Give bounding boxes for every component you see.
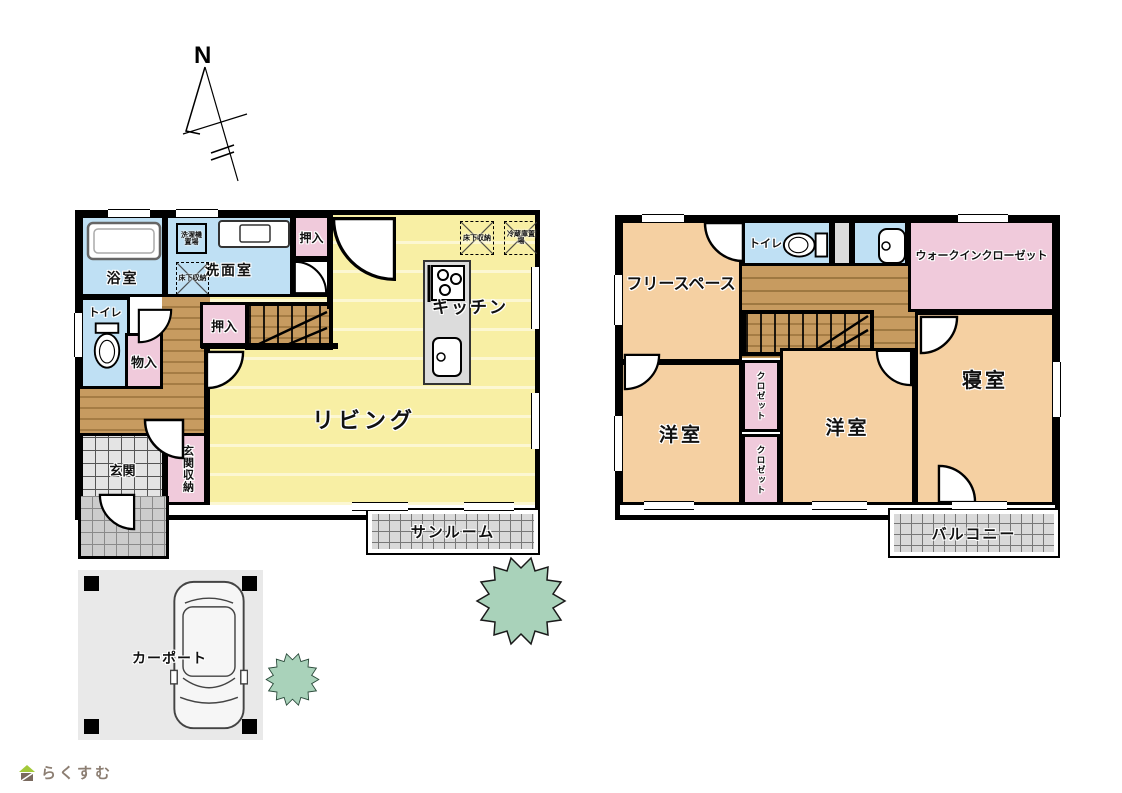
room-label-bath: 浴室 bbox=[107, 268, 139, 288]
room-toilet-2f: トイレ bbox=[742, 220, 832, 266]
floor1-plan: リビング キッチン 浴室 洗面室 洗濯機置場 床下収納 bbox=[75, 210, 540, 520]
window bbox=[952, 501, 1007, 510]
washbasin-icon bbox=[877, 227, 907, 265]
tree-icon bbox=[265, 652, 320, 707]
underfloor-storage-label: 床下収納 bbox=[463, 235, 491, 242]
carport-post bbox=[84, 719, 99, 734]
room-label-closet-1: クロゼット bbox=[755, 371, 768, 421]
window bbox=[642, 214, 684, 223]
room-label-closet-2: クロゼット bbox=[755, 445, 768, 495]
washing-machine-area: 洗濯機置場 bbox=[176, 223, 207, 254]
window bbox=[74, 313, 83, 357]
toilet-icon bbox=[91, 322, 123, 370]
logo-house-icon bbox=[18, 764, 36, 782]
partition bbox=[832, 220, 852, 266]
window bbox=[531, 393, 540, 449]
stairs-direction-lines bbox=[746, 314, 870, 352]
door-arc bbox=[332, 217, 396, 281]
door-arc bbox=[704, 222, 744, 262]
site-logo: らくすむ bbox=[18, 762, 113, 783]
window bbox=[176, 209, 218, 218]
room-label-wic: ウォークインクローゼット bbox=[916, 247, 1048, 263]
door-arc bbox=[206, 351, 244, 389]
carport: カーポート bbox=[78, 570, 263, 740]
bathtub-icon bbox=[86, 221, 162, 261]
kitchen-counter-icon bbox=[423, 260, 471, 385]
door-arc bbox=[920, 316, 958, 354]
room-label-sunroom: サンルーム bbox=[411, 521, 496, 542]
room-label-toilet-2f: トイレ bbox=[749, 235, 782, 251]
room-label-living: リビング bbox=[312, 403, 416, 435]
room-label-yoshitsu-1: 洋室 bbox=[659, 420, 703, 447]
room-toilet-1f: トイレ bbox=[80, 297, 130, 389]
window bbox=[958, 214, 1008, 223]
room-label-toilet-1f: トイレ bbox=[89, 304, 122, 320]
window bbox=[108, 209, 150, 218]
window bbox=[352, 502, 408, 511]
room-bath: 浴室 bbox=[80, 215, 165, 297]
entrance-porch bbox=[78, 496, 169, 559]
compass-north-icon: N bbox=[150, 35, 260, 185]
vanity-icon bbox=[218, 220, 290, 248]
room-label-genkan: 玄関 bbox=[109, 460, 135, 479]
room-label-yoshitsu-2: 洋室 bbox=[825, 413, 869, 440]
logo-brand-text: らくすむ bbox=[41, 762, 113, 783]
room-oshiire-top: 押入 bbox=[293, 215, 330, 259]
room-label-balcony: バルコニー bbox=[932, 523, 1017, 544]
sunroom: サンルーム bbox=[366, 508, 540, 555]
door-arc bbox=[144, 419, 184, 459]
floor2-plan: フリースペース トイレ ウォークインクローゼット bbox=[615, 215, 1060, 520]
window bbox=[812, 501, 867, 510]
floorplan-canvas: N リビング キッチン 浴室 洗面室 洗濯機置 bbox=[0, 0, 1122, 793]
underfloor-storage-icon: 床下収納 bbox=[176, 262, 209, 295]
entrance-door-arc bbox=[99, 494, 135, 530]
fridge-space-icon: 冷蔵庫置場 bbox=[504, 221, 538, 255]
room-label-monoire: 物入 bbox=[131, 352, 157, 371]
room-label-oshiire-top: 押入 bbox=[299, 229, 323, 246]
window bbox=[614, 275, 623, 325]
fridge-space-label: 冷蔵庫置場 bbox=[507, 231, 535, 245]
underfloor-storage-icon: 床下収納 bbox=[460, 221, 494, 255]
door-arc bbox=[876, 350, 912, 386]
room-label-free-space: フリースペース bbox=[626, 270, 735, 294]
door-arc bbox=[624, 354, 660, 390]
basin-nook bbox=[852, 220, 908, 266]
room-washroom: 洗面室 洗濯機置場 床下収納 bbox=[165, 215, 293, 297]
room-oshiire-mid: 押入 bbox=[200, 302, 248, 348]
window bbox=[644, 501, 694, 510]
stairs-direction-lines bbox=[249, 306, 329, 346]
carport-post bbox=[84, 576, 99, 591]
room-label-shinshitsu: 寝室 bbox=[962, 364, 1008, 393]
window bbox=[531, 267, 540, 329]
window bbox=[464, 502, 514, 511]
room-wic: ウォークインクローゼット bbox=[908, 220, 1055, 312]
underfloor-storage-label: 床下収納 bbox=[179, 275, 207, 282]
tree-icon bbox=[475, 555, 567, 647]
room-closet-2: クロゼット bbox=[742, 434, 780, 505]
door-arc bbox=[138, 309, 172, 343]
room-closet-1: クロゼット bbox=[742, 360, 780, 432]
washing-machine-label: 洗濯機置場 bbox=[179, 232, 205, 246]
compass-n-letter: N bbox=[194, 42, 211, 69]
carport-label: カーポート bbox=[132, 648, 207, 668]
balcony: バルコニー bbox=[888, 508, 1060, 558]
door-arc bbox=[938, 465, 976, 503]
toilet-icon bbox=[781, 228, 831, 262]
room-label-kitchen: キッチン bbox=[432, 293, 508, 318]
window bbox=[1052, 362, 1061, 417]
window bbox=[614, 416, 623, 471]
room-label-washroom: 洗面室 bbox=[205, 260, 253, 280]
door-arc bbox=[294, 261, 327, 294]
room-label-oshiire-mid: 押入 bbox=[211, 316, 237, 335]
